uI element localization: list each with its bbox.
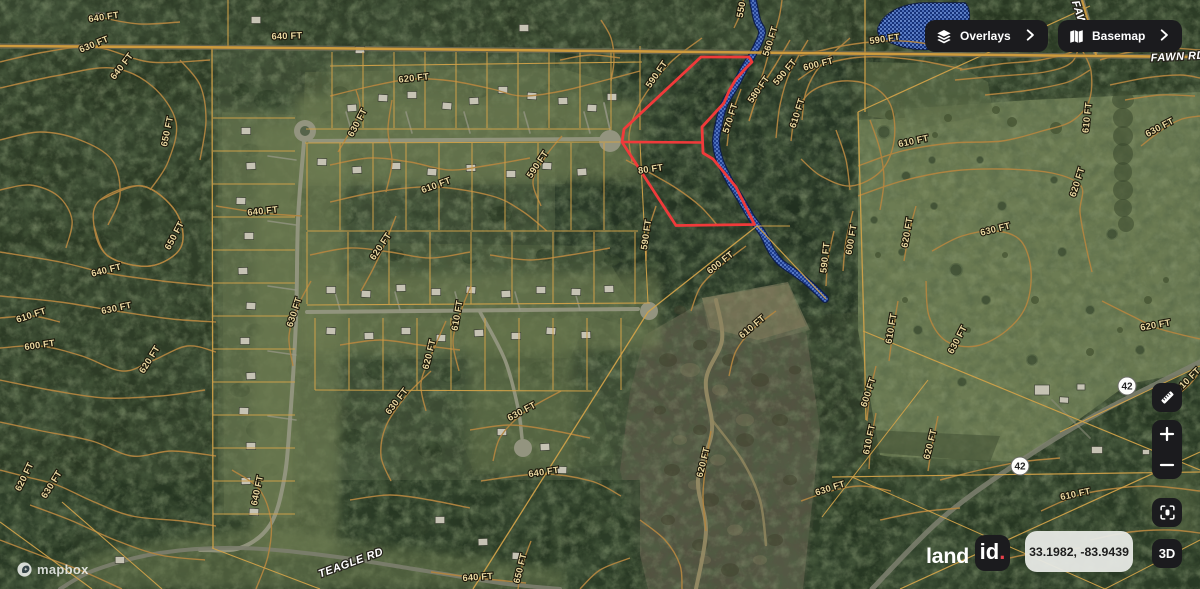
svg-text:42: 42 (1121, 382, 1133, 393)
svg-text:640 FT: 640 FT (271, 30, 302, 41)
svg-text:640 FT: 640 FT (462, 571, 493, 583)
svg-text:42: 42 (1014, 462, 1026, 473)
